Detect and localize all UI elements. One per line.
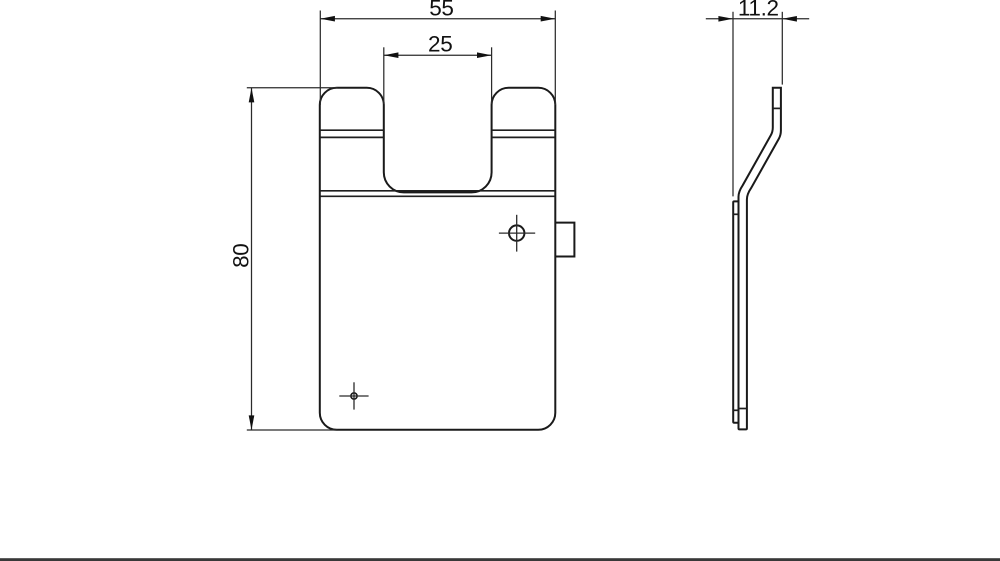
svg-text:80: 80 — [228, 244, 253, 268]
svg-text:25: 25 — [428, 32, 452, 57]
svg-text:11.2: 11.2 — [738, 0, 779, 21]
svg-text:55: 55 — [429, 0, 453, 21]
